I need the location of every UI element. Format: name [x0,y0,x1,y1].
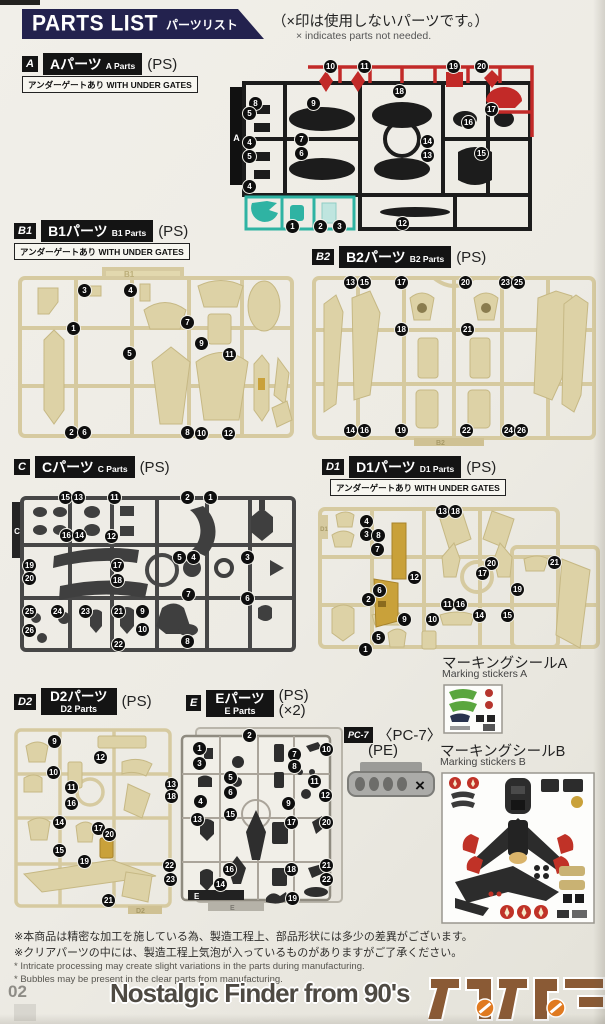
runner-d2-tab [128,906,162,914]
part-number-badge: 22 [320,873,333,886]
page-edge-shadow-right [593,0,605,1024]
part-number-badge: 22 [163,859,176,872]
runner-e-material: (PS) [279,688,309,703]
part-number-badge: 11 [358,60,371,73]
part-number-badge: 9 [307,97,320,110]
part-number-badge: 18 [393,85,406,98]
part-number-badge: 1 [359,643,372,656]
part-number-badge: 10 [47,766,60,779]
part-number-badge: 8 [181,635,194,648]
pc7-sprue: × [346,760,442,806]
part-number-badge: 1 [193,742,206,755]
part-number-badge: 3 [193,757,206,770]
runner-a-badge: A [22,56,38,72]
runner-a-black-parts [254,102,514,217]
runner-e-title-en: E Parts [224,706,255,716]
runner-d2-tab-label: D2 [136,908,145,914]
part-number-badge: 14 [421,135,434,148]
part-number-badge: 9 [48,735,61,748]
runner-b1-undergate-note: アンダーゲートあり WITH UNDER GATES [14,243,190,260]
part-number-badge: 7 [295,133,308,146]
part-number-badge: 13 [436,505,449,518]
page-title-jp: パーツリスト [166,16,238,33]
part-number-badge: 23 [499,276,512,289]
part-number-badge: 19 [395,424,408,437]
runner-e-badge: E [186,695,201,711]
runner-d2-title: D2パーツ D2 Parts [41,688,117,715]
pc7-unused-mark: × [415,776,425,795]
runner-a-title-jp: Aパーツ [50,54,102,74]
part-number-badge: 22 [460,424,473,437]
part-number-badge: 9 [398,613,411,626]
runner-b1-diagram: B1 341791152681012 [14,266,300,444]
section-b2-header: B2 B2パーツ B2 Parts (PS) [312,246,486,268]
part-number-badge: 13 [421,149,434,162]
runner-b2-tab-label: B2 [436,440,445,447]
pc7-diagram: × [346,760,442,806]
part-number-badge: 7 [371,543,384,556]
part-number-badge: 12 [319,789,332,802]
part-number-badge: 4 [360,515,373,528]
runner-b1-badge: B1 [14,223,36,239]
section-e-header: E Eパーツ E Parts (PS) (×2) [186,688,309,718]
runner-a-material: (PS) [147,56,177,73]
runner-b2-detail [481,303,491,313]
part-number-badge: 17 [285,816,298,829]
part-number-badge: 15 [358,276,371,289]
footnote-jp-2: ※クリアパーツの中には、製造工程上気泡が入っているものがありますがご了承ください… [14,944,462,960]
runner-a-sprue: A [230,57,602,232]
part-number-badge: 6 [224,786,237,799]
part-number-badge: 26 [23,624,36,637]
runner-a-undergate-note: アンダーゲートあり WITH UNDER GATES [22,76,198,93]
part-number-badge: 5 [243,107,256,120]
part-number-badge: 21 [548,556,561,569]
part-number-badge: 11 [108,491,121,504]
part-number-badge: 22 [112,638,125,651]
runner-e-back-tab-label: E [230,905,235,912]
runner-a-diagram: A [230,57,602,232]
part-number-badge: 16 [65,797,78,810]
part-number-badge: 1 [67,322,80,335]
runner-b2-title-en: B2 Parts [410,254,445,264]
part-number-badge: 9 [136,605,149,618]
stickers-b-sheet [441,772,595,929]
part-number-badge: 4 [243,136,256,149]
part-number-badge: 15 [59,491,72,504]
part-number-badge: 2 [362,593,375,606]
runner-d2-material: (PS) [122,693,152,710]
part-number-badge: 20 [475,60,488,73]
runner-b2-sprue: B2 [306,272,602,447]
part-number-badge: 12 [222,427,235,440]
part-number-badge: 9 [195,337,208,350]
part-number-badge: 5 [372,631,385,644]
part-number-badge: 10 [324,60,337,73]
part-number-badge: 14 [214,878,227,891]
runner-e-title-jp: Eパーツ [215,691,264,706]
part-number-badge: 24 [502,424,515,437]
part-number-badge: 5 [173,551,186,564]
section-a-header: A Aパーツ A Parts (PS) [22,53,177,75]
part-number-badge: 23 [79,605,92,618]
runner-b2-detail [417,303,427,313]
parts-list-banner: PARTS LIST パーツリスト [22,9,264,39]
parts-list-page: PARTS LIST パーツリスト （×印は使用しないパーツです。） × ind… [0,0,605,1024]
section-d1-header: D1 D1パーツ D1 Parts (PS) [322,456,496,478]
scan-edge-artifact [0,0,40,5]
page-number: 02 [8,982,27,1002]
part-number-badge: 17 [111,559,124,572]
part-number-badge: 14 [344,424,357,437]
part-number-badge: 4 [243,180,256,193]
runner-d2-sprue: D2 [10,722,178,914]
part-number-badge: 16 [223,863,236,876]
part-number-badge: 26 [515,424,528,437]
runner-c-material: (PS) [140,459,170,476]
part-number-badge: 20 [23,572,36,585]
part-number-badge: 7 [182,588,195,601]
part-number-badge: 20 [459,276,472,289]
runner-b2-material: (PS) [456,249,486,266]
part-number-badge: 21 [461,323,474,336]
runner-d1-tab-label: D1 [320,527,328,533]
runner-e-diagram: E [180,722,346,914]
part-number-badge: 20 [103,828,116,841]
part-number-badge: 8 [181,426,194,439]
section-b1-header: B1 B1パーツ B1 Parts (PS) [14,220,188,242]
unused-parts-note-en: × indicates parts not needed. [296,30,431,42]
part-number-badge: 19 [286,892,299,905]
part-number-badge: 12 [396,217,409,230]
runner-b1-title: B1パーツ B1 Parts [41,220,153,242]
runner-c-sprue: C [12,490,300,660]
part-number-badge: 20 [320,816,333,829]
part-number-badge: 15 [501,609,514,622]
runner-d1-undergate-note: アンダーゲートあり WITH UNDER GATES [330,479,506,496]
runner-d1-title: D1パーツ D1 Parts [349,456,461,478]
runner-b1-material: (PS) [158,223,188,240]
part-number-badge: 3 [78,284,91,297]
runner-d1-material: (PS) [466,459,496,476]
runner-b2-badge: B2 [312,249,334,265]
part-number-badge: 16 [60,529,73,542]
page-edge-shadow-bottom [0,1014,605,1024]
part-number-badge: 9 [282,797,295,810]
part-number-badge: 21 [320,859,333,872]
part-number-badge: 4 [187,551,200,564]
pc7-badge: PC-7 [344,727,373,743]
part-number-badge: 5 [243,150,256,163]
runner-a-title-en: A Parts [106,61,135,71]
part-number-badge: 2 [314,220,327,233]
footnote-jp-1: ※本商品は精密な加工を施している為、製造工程上、部品形状には多少の差異がございま… [14,928,473,944]
part-number-badge: 17 [395,276,408,289]
runner-b1-tab-label: B1 [124,270,135,279]
section-c-header: C Cパーツ C Parts (PS) [14,456,170,478]
runner-d2-diagram: D2 91210111318161417201519222321 [10,722,178,914]
runner-a-title: Aパーツ A Parts [43,53,142,75]
stickers-b-title-en: Marking stickers B [440,756,526,768]
page-title: PARTS LIST [32,11,158,36]
part-number-badge: 1 [286,220,299,233]
part-number-badge: 10 [136,623,149,636]
part-number-badge: 12 [94,751,107,764]
part-number-badge: 8 [288,760,301,773]
part-number-badge: 13 [191,813,204,826]
part-number-badge: 7 [181,316,194,329]
part-number-badge: 24 [51,605,64,618]
watermark-text: Nostalgic Finder from 90's [110,978,409,1009]
runner-a-teal-parts [251,201,304,222]
runner-a-clear-part [322,203,336,223]
runner-d1-title-en: D1 Parts [420,464,455,474]
part-number-badge: 2 [65,426,78,439]
part-number-badge: 21 [112,605,125,618]
runner-d2-title-en: D2 Parts [61,704,98,714]
part-number-badge: 25 [512,276,525,289]
runner-b1-title-en: B1 Parts [112,228,147,238]
part-number-badge: 14 [53,816,66,829]
part-number-badge: 10 [195,427,208,440]
part-number-badge: 13 [344,276,357,289]
runner-b2-diagram: B2 1315172023251821141619222426 [306,272,602,447]
part-number-badge: 11 [65,781,78,794]
part-number-badge: 16 [358,424,371,437]
part-number-badge: 8 [372,529,385,542]
runner-d1-diagram: D1 131843872 [312,497,604,655]
part-number-badge: 6 [78,426,91,439]
pc7-material: (PE) [368,742,398,759]
part-number-badge: 4 [194,795,207,808]
part-number-badge: 5 [123,347,136,360]
part-number-badge: 10 [426,613,439,626]
runner-d1-sprue: D1 [312,497,604,655]
part-number-badge: 13 [72,491,85,504]
runner-b1-sprue: B1 [14,266,300,444]
part-number-badge: 1 [204,491,217,504]
unused-parts-note-jp: （×印は使用しないパーツです。） [272,10,489,31]
part-number-badge: 5 [224,771,237,784]
section-d2-header: D2 D2パーツ D2 Parts (PS) [14,688,152,715]
runner-c-tab-label: C [14,527,20,536]
part-number-badge: 14 [73,529,86,542]
runner-d1-badge: D1 [322,459,344,475]
runner-c-diagram: C [12,490,300,660]
part-number-badge: 17 [485,103,498,116]
runner-a-tab-label: A [233,133,240,143]
runner-c-title: Cパーツ C Parts [35,456,135,478]
part-number-badge: 18 [395,323,408,336]
part-number-badge: 10 [320,743,333,756]
part-number-badge: 11 [441,598,454,611]
runner-e-quantity: (×2) [279,703,309,718]
part-number-badge: 16 [454,598,467,611]
runner-b1-gold-part [258,378,265,390]
part-number-badge: 17 [476,567,489,580]
part-number-badge: 25 [23,605,36,618]
runner-d1-title-jp: D1パーツ [356,457,416,477]
part-number-badge: 11 [223,348,236,361]
runner-d2-title-jp: D2パーツ [50,689,108,704]
part-number-badge: 18 [111,574,124,587]
part-number-badge: 19 [78,855,91,868]
part-number-badge: 6 [373,584,386,597]
runner-b2-title: B2パーツ B2 Parts [339,246,451,268]
part-number-badge: 21 [102,894,115,907]
part-number-badge: 15 [475,147,488,160]
part-number-badge: 15 [224,808,237,821]
runner-e-tab-label: E [194,892,200,901]
part-number-badge: 12 [408,571,421,584]
runner-e-material-block: (PS) (×2) [279,688,309,718]
part-number-badge: 11 [308,775,321,788]
stickers-a-sheet [443,684,503,739]
runner-e-back-tab [208,902,264,911]
part-number-badge: 15 [53,844,66,857]
part-number-badge: 4 [124,284,137,297]
runner-b2-tab [414,438,484,446]
part-number-badge: 18 [165,790,178,803]
part-number-badge: 2 [181,491,194,504]
runner-b1-title-jp: B1パーツ [48,221,108,241]
runner-d2-badge: D2 [14,694,36,710]
stickers-a-title-en: Marking stickers A [442,668,527,680]
part-number-badge: 14 [473,609,486,622]
part-number-badge: 2 [243,729,256,742]
part-number-badge: 19 [23,559,36,572]
part-number-badge: 23 [164,873,177,886]
part-number-badge: 18 [449,505,462,518]
footnote-en-1: * Intricate processing may create slight… [14,961,365,972]
part-number-badge: 12 [105,530,118,543]
part-number-badge: 3 [241,551,254,564]
part-number-badge: 19 [447,60,460,73]
part-number-badge: 18 [285,863,298,876]
part-number-badge: 6 [295,147,308,160]
runner-e-title: Eパーツ E Parts [206,690,273,717]
part-number-badge: 6 [241,592,254,605]
part-number-badge: 19 [511,583,524,596]
runner-c-badge: C [14,459,30,475]
runner-b2-title-jp: B2パーツ [346,247,406,267]
part-number-badge: 3 [333,220,346,233]
runner-c-title-en: C Parts [98,464,128,474]
runner-c-title-jp: Cパーツ [42,457,94,477]
part-number-badge: 16 [462,116,475,129]
runner-d2-gold-part [100,838,113,858]
